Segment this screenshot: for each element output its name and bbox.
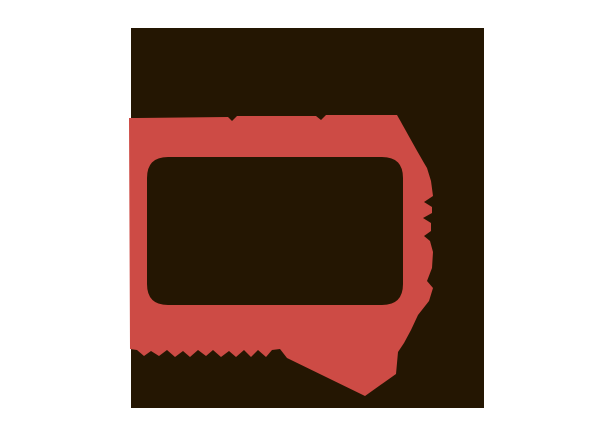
logo-canvas — [0, 0, 614, 437]
logo-graphic — [0, 0, 614, 437]
